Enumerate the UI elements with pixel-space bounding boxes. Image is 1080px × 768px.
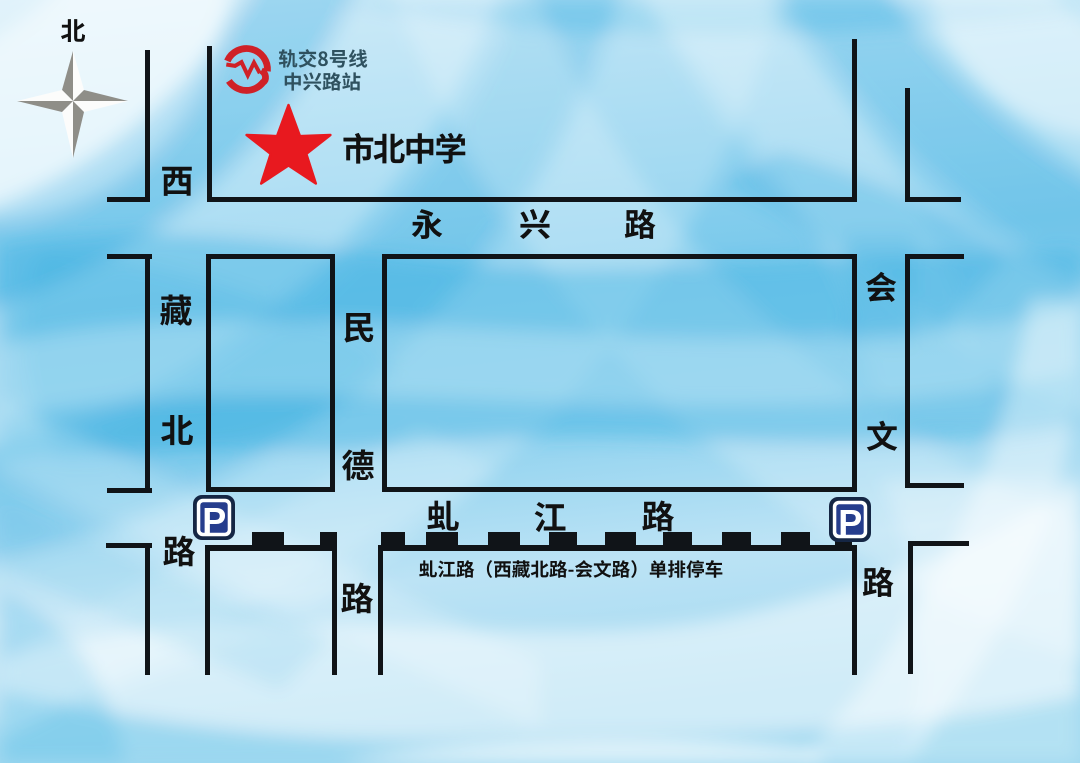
svg-text:P: P [838, 502, 862, 543]
svg-text:P: P [202, 500, 226, 541]
